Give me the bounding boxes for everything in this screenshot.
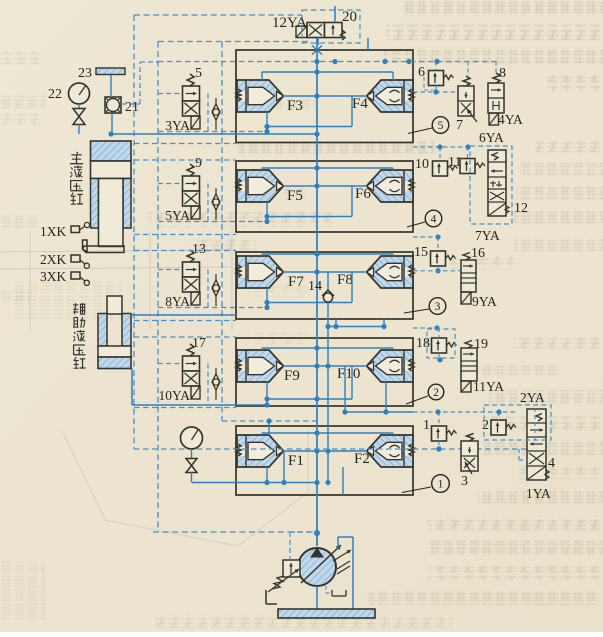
svg-text:7YA: 7YA xyxy=(475,228,500,243)
svg-text:F2: F2 xyxy=(354,451,370,467)
svg-text:20: 20 xyxy=(342,9,357,25)
svg-text:21: 21 xyxy=(125,100,139,115)
svg-text:3: 3 xyxy=(461,474,468,489)
svg-text:4: 4 xyxy=(548,456,555,471)
svg-text:11YA: 11YA xyxy=(473,379,504,394)
svg-text:1: 1 xyxy=(423,418,430,433)
svg-text:14: 14 xyxy=(308,279,322,294)
svg-text:19: 19 xyxy=(474,337,488,352)
svg-text:22: 22 xyxy=(48,87,62,102)
svg-text:2: 2 xyxy=(482,418,489,433)
svg-text:4: 4 xyxy=(431,214,437,226)
svg-text:18: 18 xyxy=(416,336,430,351)
svg-text:5YA: 5YA xyxy=(165,208,190,223)
svg-text:6YA: 6YA xyxy=(479,130,504,145)
svg-text:4YA: 4YA xyxy=(498,112,523,127)
svg-text:23: 23 xyxy=(78,66,92,81)
svg-text:1XK: 1XK xyxy=(40,224,66,239)
svg-text:10YA: 10YA xyxy=(158,388,190,403)
svg-text:5: 5 xyxy=(195,66,202,81)
svg-text:16: 16 xyxy=(471,246,485,261)
svg-text:F4: F4 xyxy=(352,96,368,112)
svg-text:11: 11 xyxy=(448,155,461,170)
svg-text:10: 10 xyxy=(415,157,429,172)
svg-text:2YA: 2YA xyxy=(520,390,545,405)
svg-text:8YA: 8YA xyxy=(165,294,190,309)
svg-text:F9: F9 xyxy=(284,368,300,384)
svg-text:F1: F1 xyxy=(288,453,304,469)
svg-text:1: 1 xyxy=(438,479,444,491)
svg-text:3XK: 3XK xyxy=(40,269,66,284)
svg-text:12: 12 xyxy=(514,201,528,216)
svg-text:15: 15 xyxy=(414,245,428,260)
svg-text:F7: F7 xyxy=(288,274,304,290)
svg-text:F6: F6 xyxy=(355,186,371,202)
svg-text:8: 8 xyxy=(499,66,506,81)
svg-text:9: 9 xyxy=(195,156,202,171)
svg-text:12YA: 12YA xyxy=(272,15,307,31)
svg-text:9YA: 9YA xyxy=(472,294,497,309)
svg-text:1YA: 1YA xyxy=(526,486,551,501)
svg-text:2XK: 2XK xyxy=(40,252,66,267)
svg-text:F8: F8 xyxy=(337,272,353,288)
svg-text:13: 13 xyxy=(192,242,206,257)
svg-text:3: 3 xyxy=(435,301,441,313)
svg-text:5: 5 xyxy=(438,120,444,132)
svg-text:F10: F10 xyxy=(337,366,360,382)
svg-text:7: 7 xyxy=(456,118,463,133)
svg-text:3YA: 3YA xyxy=(165,118,190,133)
svg-text:F5: F5 xyxy=(287,188,303,204)
svg-text:2: 2 xyxy=(433,387,439,399)
svg-text:F3: F3 xyxy=(287,98,303,114)
svg-text:17: 17 xyxy=(192,336,206,351)
